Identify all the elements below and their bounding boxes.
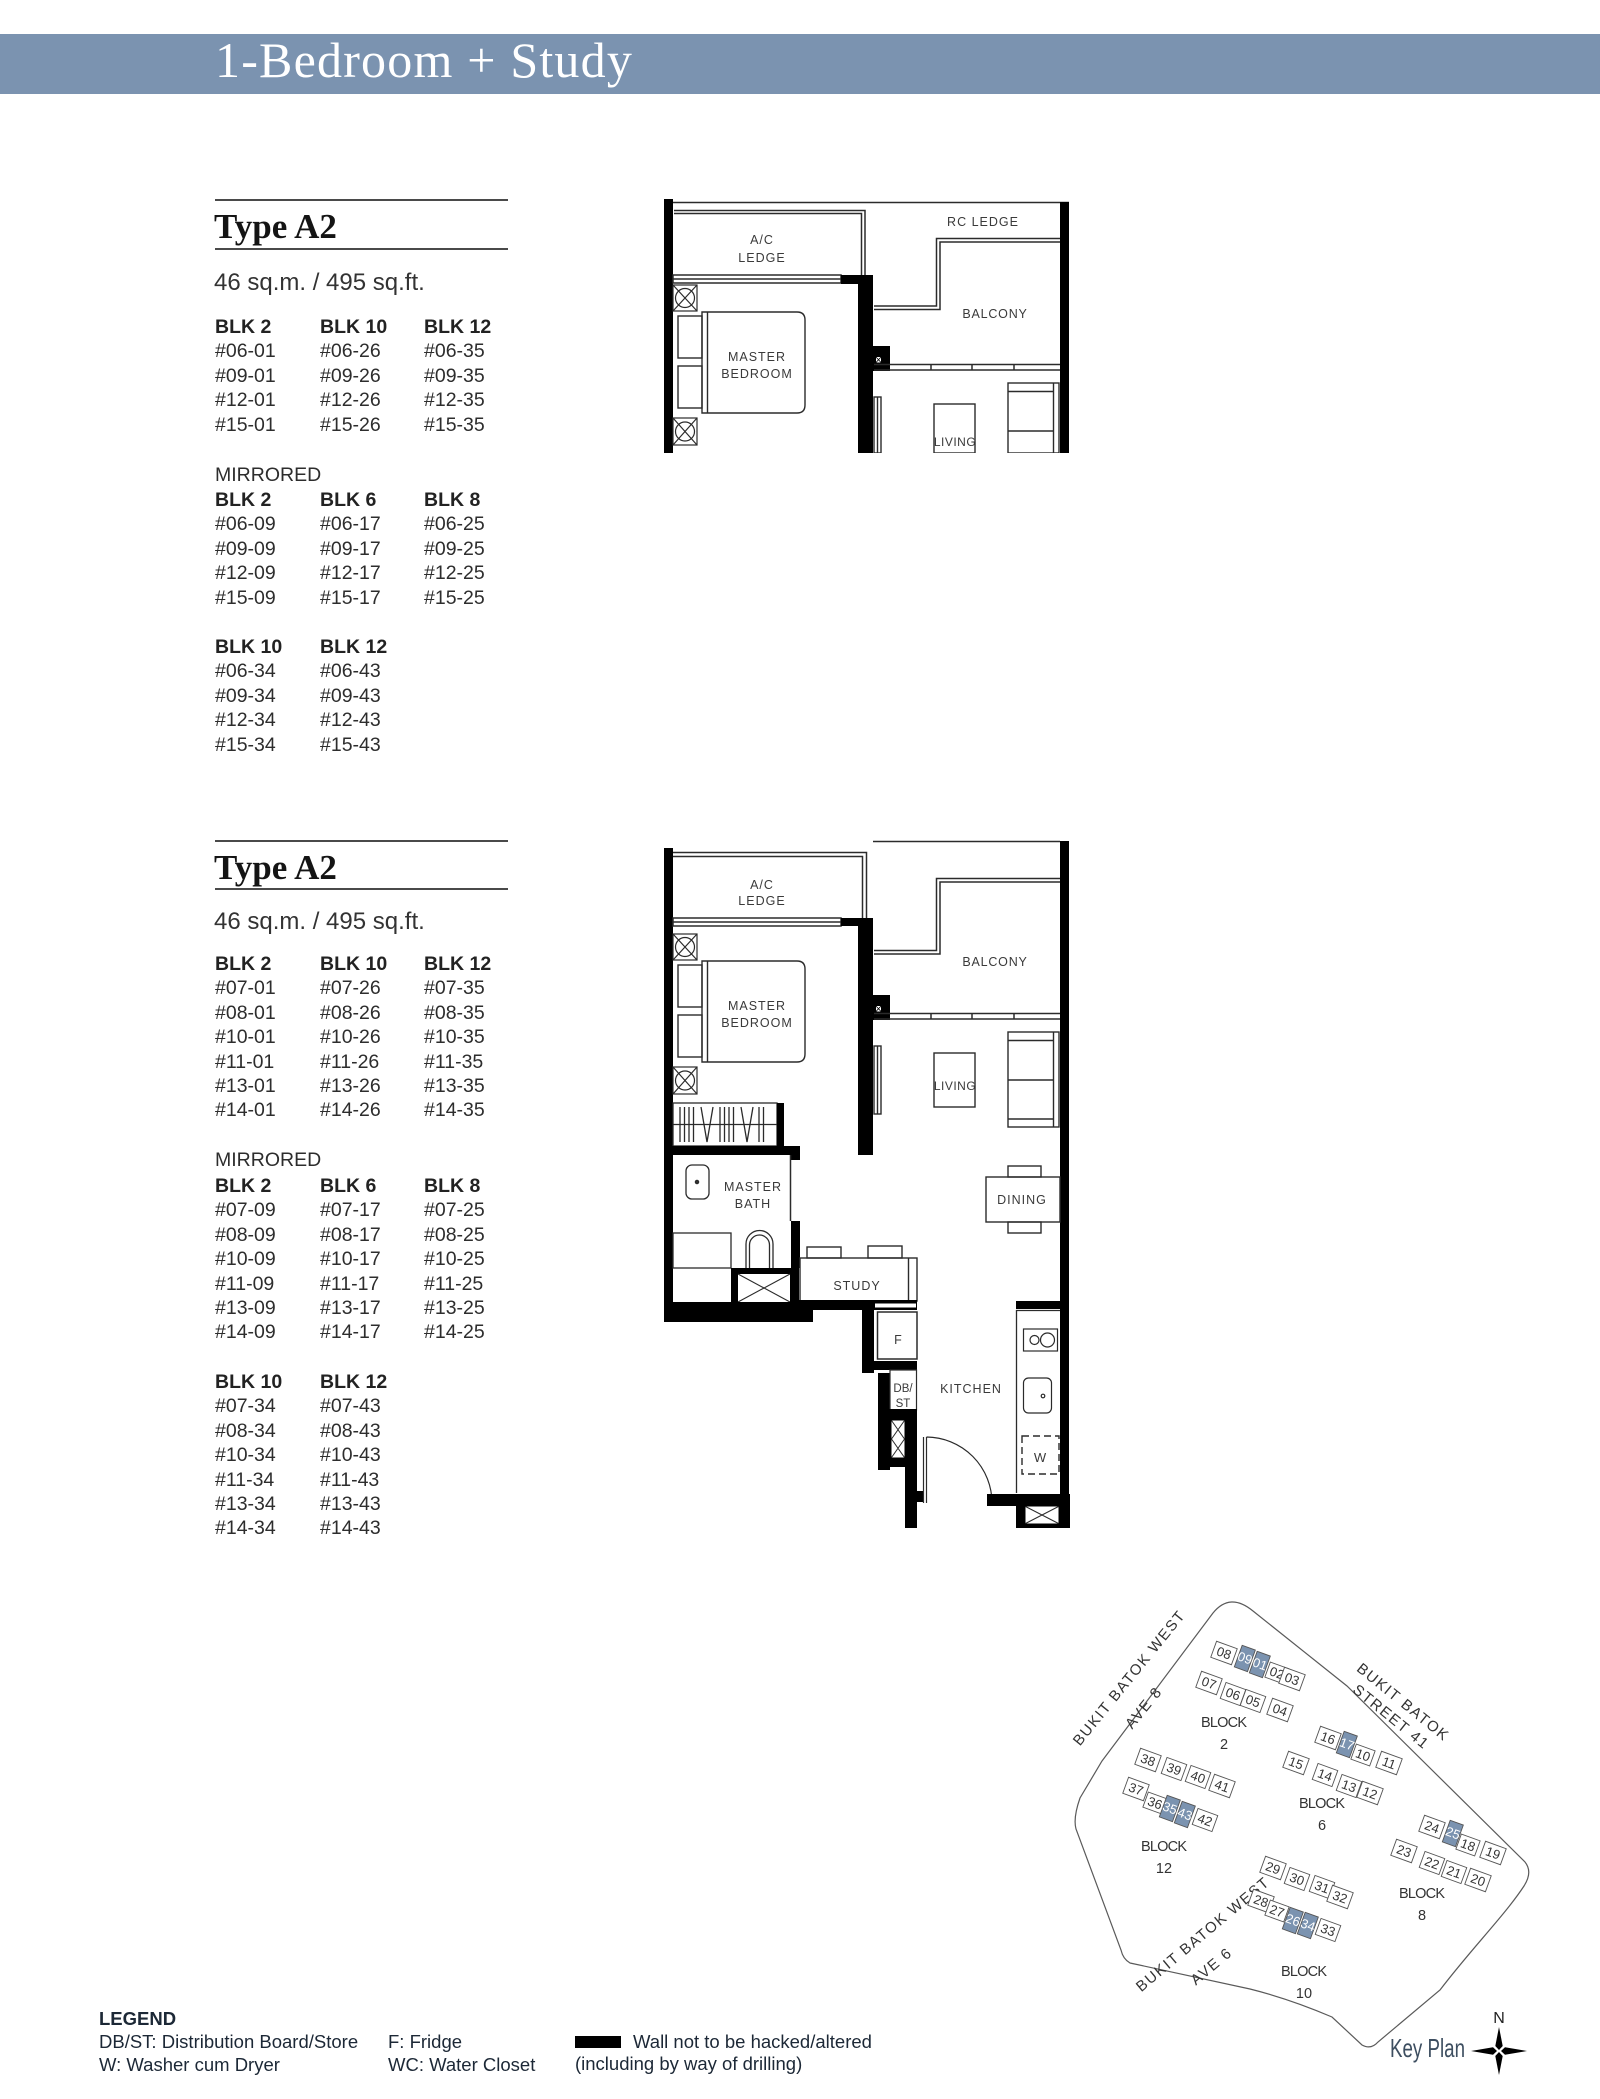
svg-text:6: 6 xyxy=(1318,1818,1326,1834)
svg-text:8: 8 xyxy=(1418,1908,1426,1924)
svg-text:BLOCK: BLOCK xyxy=(1299,1796,1345,1812)
svg-text:STUDY: STUDY xyxy=(833,1279,880,1293)
svg-text:MASTER: MASTER xyxy=(728,999,786,1013)
svg-text:BLOCK: BLOCK xyxy=(1141,1839,1187,1855)
svg-text:LEDGE: LEDGE xyxy=(738,894,785,908)
svg-text:MASTER: MASTER xyxy=(728,350,786,364)
svg-text:ST: ST xyxy=(896,1398,911,1410)
svg-text:MASTER: MASTER xyxy=(724,1180,782,1194)
svg-text:BATH: BATH xyxy=(735,1197,771,1211)
svg-text:RC LEDGE: RC LEDGE xyxy=(947,215,1019,229)
svg-text:A/C: A/C xyxy=(750,233,774,247)
svg-text:Key Plan: Key Plan xyxy=(1390,2033,1465,2063)
svg-text:BEDROOM: BEDROOM xyxy=(721,367,793,381)
svg-text:DB/: DB/ xyxy=(893,1383,913,1395)
svg-text:12: 12 xyxy=(1156,1861,1172,1877)
svg-text:LIVING: LIVING xyxy=(934,1079,976,1093)
svg-text:BLOCK: BLOCK xyxy=(1281,1964,1327,1980)
svg-text:F: F xyxy=(894,1333,902,1347)
svg-text:BALCONY: BALCONY xyxy=(962,955,1027,969)
svg-text:LIVING: LIVING xyxy=(934,435,976,449)
svg-text:10: 10 xyxy=(1296,1986,1312,2002)
svg-text:W: W xyxy=(1034,1450,1047,1465)
svg-text:BALCONY: BALCONY xyxy=(962,307,1027,321)
svg-text:LEDGE: LEDGE xyxy=(738,251,785,265)
svg-text:A/C: A/C xyxy=(750,878,774,892)
svg-text:2: 2 xyxy=(1220,1737,1228,1753)
svg-text:BLOCK: BLOCK xyxy=(1201,1715,1247,1731)
svg-text:BLOCK: BLOCK xyxy=(1399,1886,1445,1902)
svg-text:KITCHEN: KITCHEN xyxy=(940,1382,1002,1396)
svg-text:DINING: DINING xyxy=(997,1193,1047,1207)
svg-text:BEDROOM: BEDROOM xyxy=(721,1016,793,1030)
svg-text:N: N xyxy=(1493,2010,1505,2027)
